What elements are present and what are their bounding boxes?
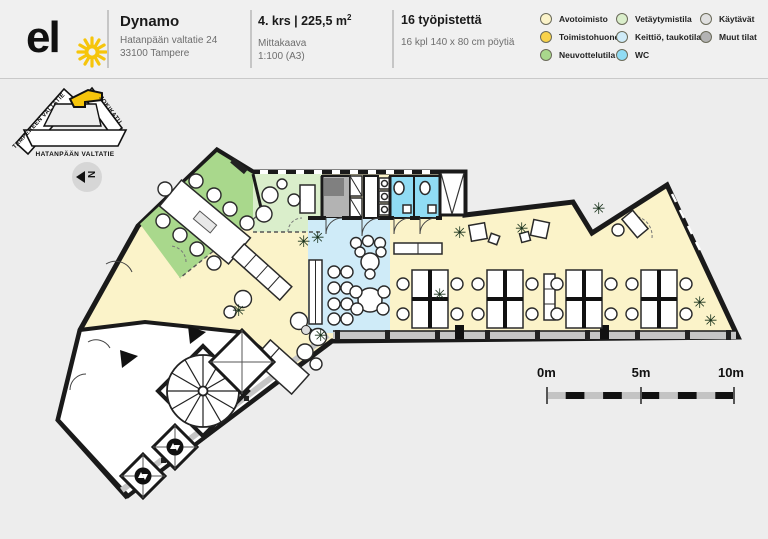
building-info: Dynamo Hatanpään valtatie 24 33100 Tampe… xyxy=(120,0,245,78)
legend-dot-toimistohuone xyxy=(540,31,552,43)
scale-10: 10m xyxy=(718,365,744,380)
window-band-south xyxy=(333,330,736,340)
header-divider xyxy=(250,10,252,68)
header: el Dynamo Hatanpään valtatie 24 33100 T xyxy=(0,0,768,79)
floor-info: 4. krs | 225,5 m2 Mittakaava 1:100 (A3) xyxy=(258,0,386,78)
page: TAMPEREEN VALTATIE JOKIKATU HATANPÄÄN VA… xyxy=(0,0,768,539)
legend-dot-wc xyxy=(616,49,628,61)
workstation-subtitle: 16 kpl 140 x 80 cm pöytiä xyxy=(401,36,531,49)
floor-area-title: 4. krs | 225,5 m2 xyxy=(258,13,386,28)
building: ✳ ✳ ✳ ✳ ✳ ✳ ✳ ✳ ✳ ✳ xyxy=(58,150,738,498)
building-title: Dynamo xyxy=(120,13,245,30)
north-indicator: N xyxy=(72,162,102,192)
north-label: N xyxy=(87,171,98,178)
scale-label: Mittakaava xyxy=(258,37,386,50)
scale-5: 5m xyxy=(632,365,651,380)
street-label: HATANPÄÄN VALTATIE xyxy=(35,150,114,158)
legend-item: Neuvottelutila xyxy=(540,48,615,62)
legend-item: Käytävät xyxy=(700,12,754,26)
legend-dot-neuvottelutila xyxy=(540,49,552,61)
svg-text:✳: ✳ xyxy=(297,234,310,251)
legend-item: Muut tilat xyxy=(700,30,757,44)
legend-item: Vetäytymistila xyxy=(616,12,692,26)
workstation-title: 16 työpistettä xyxy=(401,13,531,27)
scale-0: 0m xyxy=(537,365,556,380)
legend-dot-keittio xyxy=(616,31,628,43)
workstation-info: 16 työpistettä 16 kpl 140 x 80 cm pöytiä xyxy=(401,0,531,78)
svg-text:✳: ✳ xyxy=(592,201,605,218)
header-divider xyxy=(107,10,109,68)
scale-value: 1:100 (A3) xyxy=(258,50,386,63)
svg-text:✳: ✳ xyxy=(314,328,327,345)
svg-text:✳: ✳ xyxy=(515,221,528,238)
legend-dot-avotoimisto xyxy=(540,13,552,25)
location-map: TAMPEREEN VALTATIE JOKIKATU HATANPÄÄN VA… xyxy=(12,88,126,158)
building-address-1: Hatanpään valtatie 24 xyxy=(120,34,245,47)
svg-text:✳: ✳ xyxy=(453,225,466,242)
legend-item: WC xyxy=(616,48,649,62)
floor-plan-canvas: TAMPEREEN VALTATIE JOKIKATU HATANPÄÄN VA… xyxy=(0,0,768,539)
scale-bar: 0m 5m 10m xyxy=(537,365,744,404)
header-divider xyxy=(392,10,394,68)
svg-text:✳: ✳ xyxy=(704,313,717,330)
logo-text: el xyxy=(26,14,59,62)
svg-text:✳: ✳ xyxy=(693,295,706,312)
svg-text:✳: ✳ xyxy=(433,287,446,304)
building-address-2: 33100 Tampere xyxy=(120,47,245,60)
legend-dot-vetaytymistila xyxy=(616,13,628,25)
legend-dot-kaytavat xyxy=(700,13,712,25)
legend-item: Avotoimisto xyxy=(540,12,608,26)
svg-text:✳: ✳ xyxy=(232,303,245,320)
legend-dot-muut xyxy=(700,31,712,43)
elo-logo: el xyxy=(26,14,96,66)
legend-item: Toimistohuone xyxy=(540,30,619,44)
svg-text:✳: ✳ xyxy=(311,230,324,247)
legend-item: Keittiö, taukotilat xyxy=(616,30,704,44)
